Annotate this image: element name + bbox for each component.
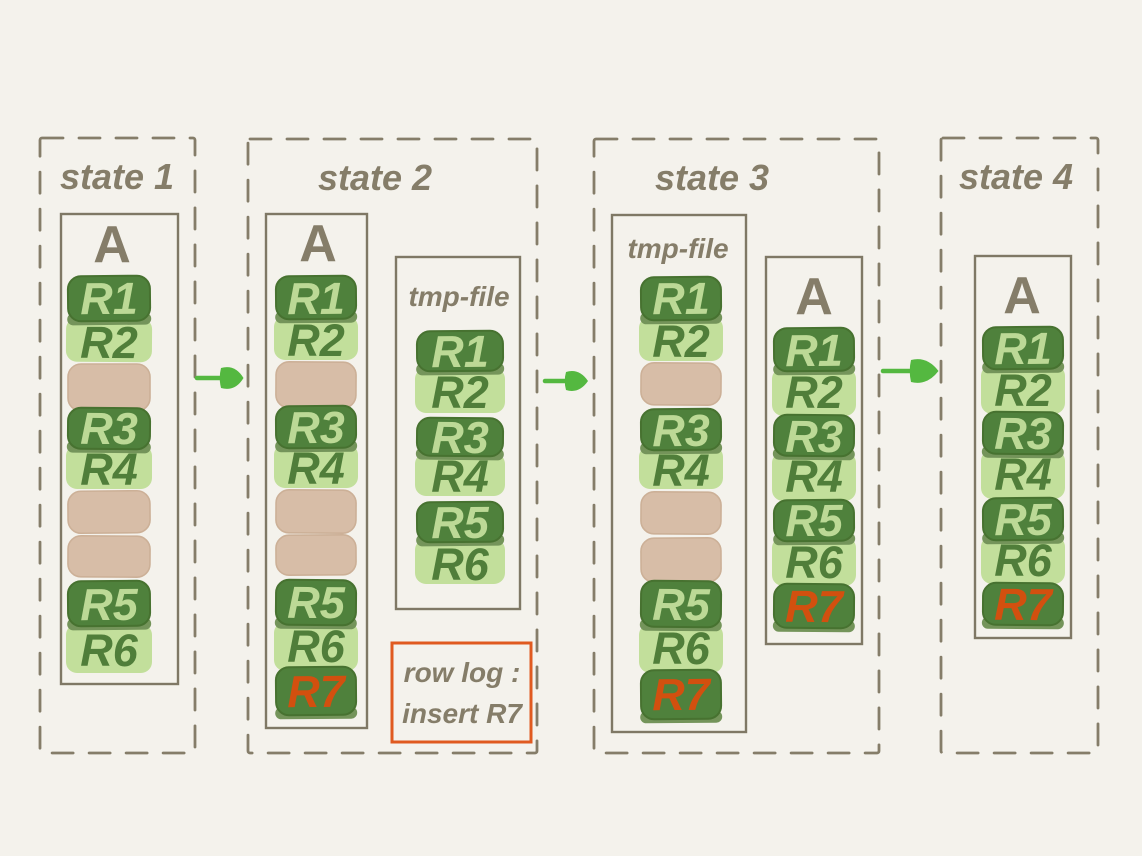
svg-text:insert R7: insert R7	[402, 698, 523, 729]
svg-text:R1: R1	[994, 323, 1052, 375]
svg-text:A: A	[93, 216, 131, 274]
svg-text:R7: R7	[287, 666, 347, 718]
svg-text:row log :: row log :	[404, 657, 521, 688]
svg-text:R3: R3	[287, 402, 345, 453]
svg-text:R3: R3	[652, 405, 710, 456]
svg-text:R3: R3	[80, 403, 138, 455]
svg-text:R7: R7	[785, 581, 845, 632]
svg-text:A: A	[795, 268, 833, 326]
svg-text:state 2: state 2	[318, 157, 432, 198]
svg-text:R5: R5	[431, 497, 490, 549]
svg-text:R5: R5	[994, 494, 1053, 546]
svg-text:R1: R1	[431, 326, 489, 378]
svg-text:R1: R1	[652, 273, 710, 325]
svg-text:state 3: state 3	[655, 157, 769, 198]
svg-text:R7: R7	[652, 669, 712, 721]
svg-text:R3: R3	[785, 411, 843, 463]
svg-text:state 1: state 1	[60, 156, 174, 197]
svg-text:state 4: state 4	[959, 156, 1073, 197]
svg-text:R7: R7	[994, 579, 1054, 630]
svg-text:R1: R1	[785, 325, 843, 377]
svg-text:R1: R1	[287, 273, 345, 325]
svg-text:tmp-file: tmp-file	[408, 281, 509, 312]
svg-text:A: A	[1003, 267, 1041, 325]
svg-text:R3: R3	[431, 412, 489, 464]
svg-text:R5: R5	[80, 579, 139, 631]
svg-text:tmp-file: tmp-file	[627, 233, 728, 264]
svg-text:R5: R5	[652, 579, 711, 631]
svg-text:R5: R5	[785, 495, 844, 547]
svg-text:A: A	[299, 215, 337, 273]
svg-text:R3: R3	[994, 408, 1052, 460]
svg-text:R1: R1	[80, 273, 138, 325]
svg-text:R6: R6	[80, 625, 138, 676]
svg-text:R5: R5	[287, 577, 346, 629]
